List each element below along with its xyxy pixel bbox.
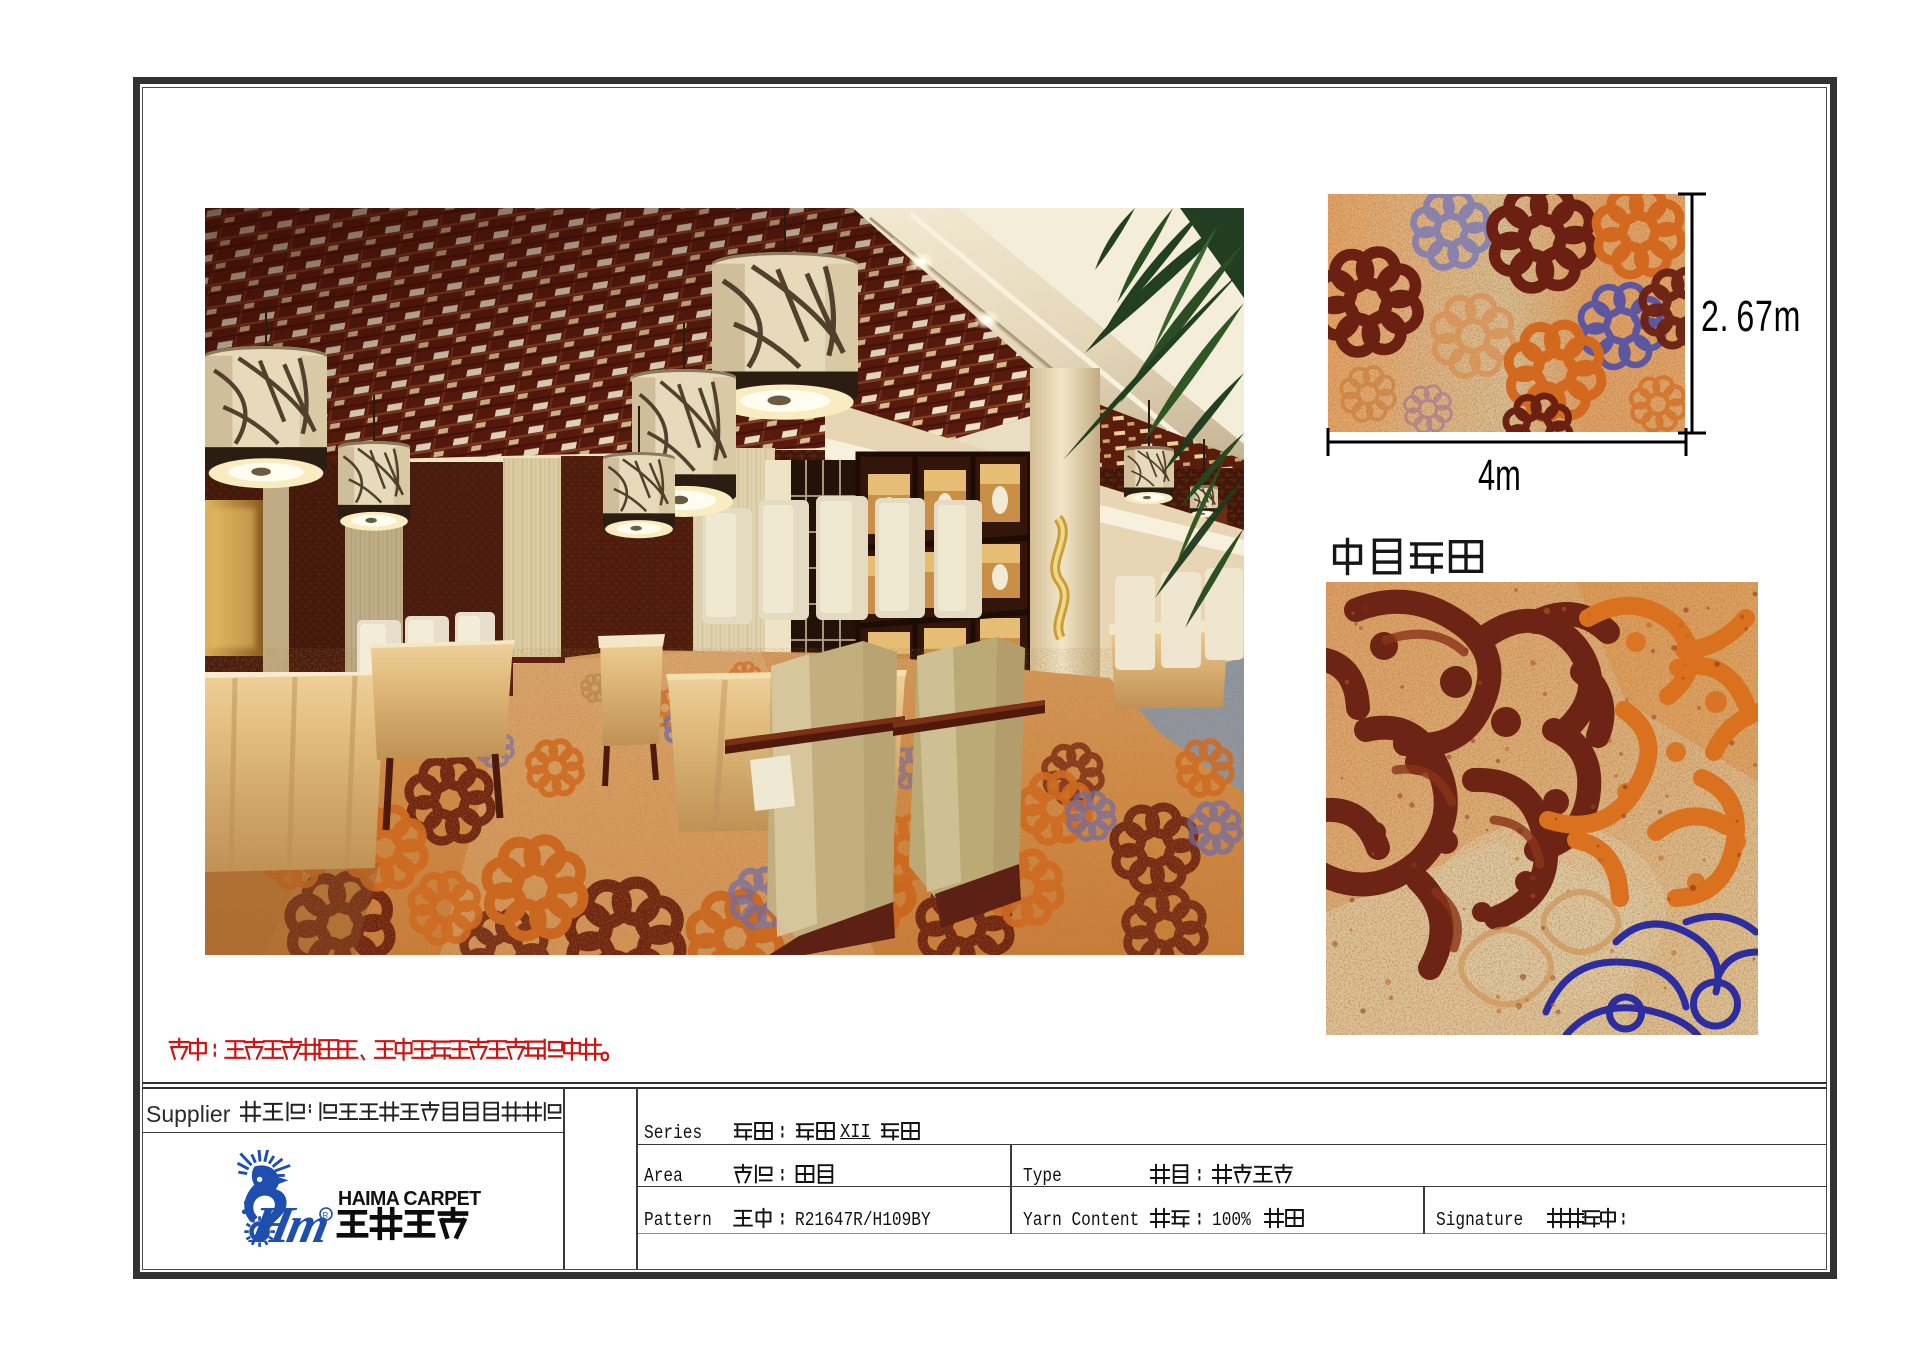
svg-text:Hm: Hm: [245, 1197, 333, 1250]
svg-text:R: R: [323, 1211, 329, 1220]
